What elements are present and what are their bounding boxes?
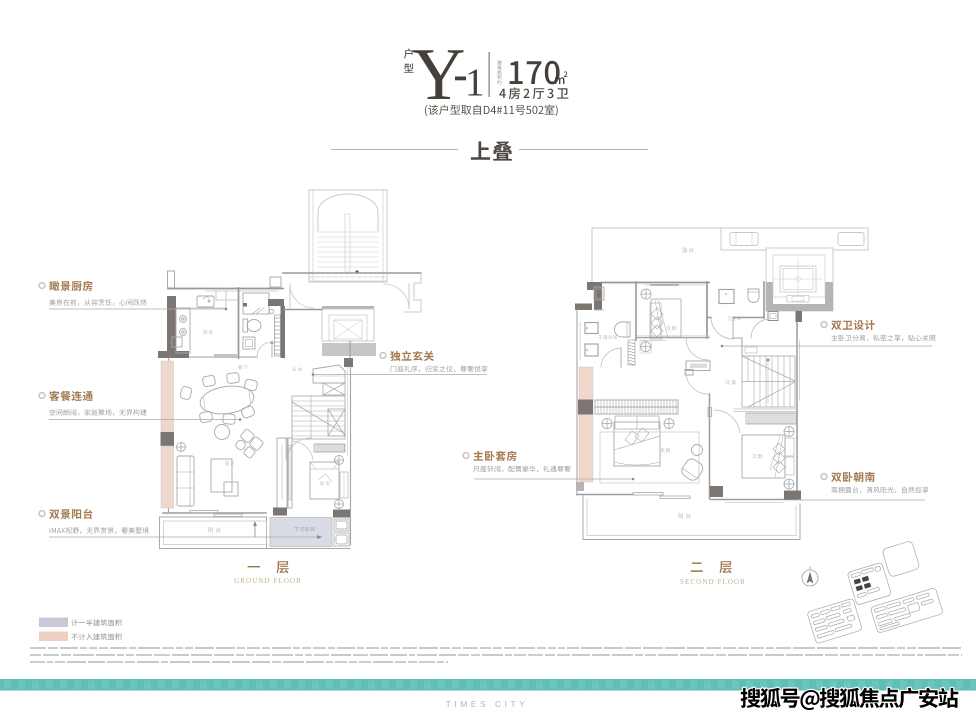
svg-text:TIMES CITY: TIMES CITY	[446, 699, 529, 709]
svg-text:1: 1	[465, 61, 485, 104]
svg-text:Y: Y	[412, 34, 465, 116]
svg-text:SECOND FLOOR: SECOND FLOOR	[680, 578, 746, 586]
svg-text:GROUND FLOOR: GROUND FLOOR	[234, 577, 302, 585]
